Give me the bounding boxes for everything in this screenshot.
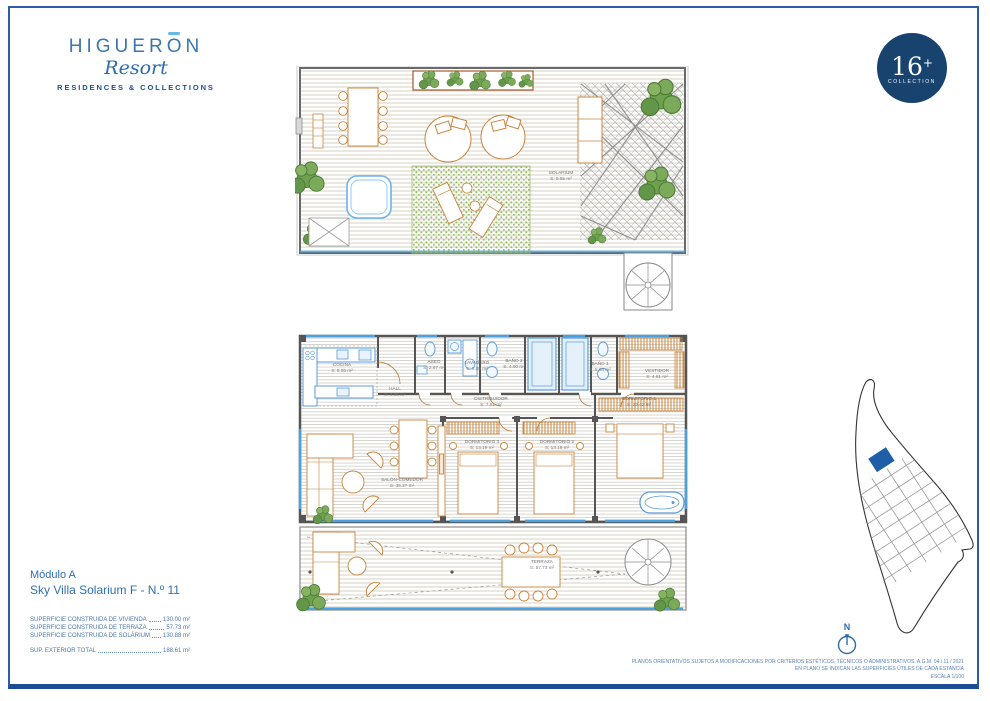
main-floor-plan [295, 334, 691, 616]
planter-box [413, 71, 533, 91]
room-label-bano1: BAÑO 1S: 5.03 m² [589, 361, 611, 373]
room-label-aseo: ASEOS: 2.67 m² [423, 359, 445, 371]
room-label-salon-comedor: SALÓN-COMEDORS: 35.27 m² [381, 477, 423, 489]
compass-icon [833, 632, 861, 656]
scale-note: ESCALA 1/100 [324, 674, 964, 681]
logo-wordmark: HIGUERON [52, 36, 220, 58]
brochure-page: { "header": { "logo": { "name_start": "H… [0, 0, 990, 701]
pergola-cabinet [578, 97, 602, 163]
disclaimer-line: EN PLANO SE INDICAN LAS SUPERFICIES ÚTIL… [324, 666, 964, 673]
round-daybed [481, 115, 525, 159]
logo-script: Resort [52, 57, 220, 79]
badge-label: COLLECTION [888, 79, 936, 85]
spiral-staircase [624, 253, 672, 310]
logo-tagline: RESIDENCES & COLLECTIONS [52, 83, 220, 92]
room-label-dormitorio2: DORMITORIO 2S: 13.19 m² [540, 439, 574, 451]
terrace-edge-blue [303, 608, 683, 610]
site-location-map [838, 372, 988, 640]
terrace-spiral-stair [625, 539, 671, 585]
corner-table [309, 218, 349, 246]
disclaimer: PLANOS ORIENTATIVOS SUJETOS A MODIFICACI… [324, 659, 964, 681]
room-label-terraza: TERRAZAS: 57.73 m² [530, 559, 554, 571]
surface-summary: SUPERFICIE CONSTRUIDA DE VIVIENDA130.00 … [30, 616, 190, 655]
resort-logo: HIGUERON Resort RESIDENCES & COLLECTIONS [52, 36, 220, 92]
grass-lounge-area [412, 166, 530, 253]
room-label-distribuidor: DISTRIBUIDORS: 7.81 m² [474, 396, 508, 408]
room-label-bano2: BAÑO 2S: 4.90 m² [503, 358, 525, 370]
collection-badge: 16+ COLLECTION [877, 33, 947, 103]
room-label-dormitorio3: DORMITORIO 3S: 13.19 m² [465, 439, 499, 451]
north-label: N [833, 622, 861, 632]
room-label-cocina: COCINAS: 8.55 m² [331, 362, 353, 374]
surface-row: SUPERFICIE CONSTRUIDA DE VIVIENDA130.00 … [30, 616, 190, 624]
badge-number: 16+ [891, 52, 933, 78]
villa-title: Sky Villa Solarium F - N.º 11 [30, 583, 180, 597]
room-label-lavadero: LAVADEROS: 3.85 m² [465, 360, 490, 372]
surface-total-row: SUP. EXTERIOR TOTAL188.61 m² [30, 647, 190, 655]
logo-accent-dash [168, 32, 180, 35]
jacuzzi [347, 176, 391, 218]
solarium-floor-plan [295, 66, 691, 314]
surface-row: SUPERFICIE CONSTRUIDA DE TERRAZA57.73 m² [30, 624, 190, 632]
surface-row: SUPERFICIE CONSTRUIDA DE SOLÁRIUM130.88 … [30, 632, 190, 640]
bathtub [640, 492, 684, 513]
room-label-solarium: SOLARIUMS: 9.55 m² [549, 170, 573, 182]
room-label-vestidor: VESTIDORS: 4.81 m² [645, 368, 669, 380]
room-label-hall: HALLS: 3.85 m² [384, 386, 406, 398]
room-label-dormitorio1: DORMITORIO 1S: 22.42 m² [622, 396, 656, 408]
resort-outline [856, 380, 974, 633]
module-title: Módulo A [30, 569, 76, 581]
round-daybed [425, 116, 471, 162]
